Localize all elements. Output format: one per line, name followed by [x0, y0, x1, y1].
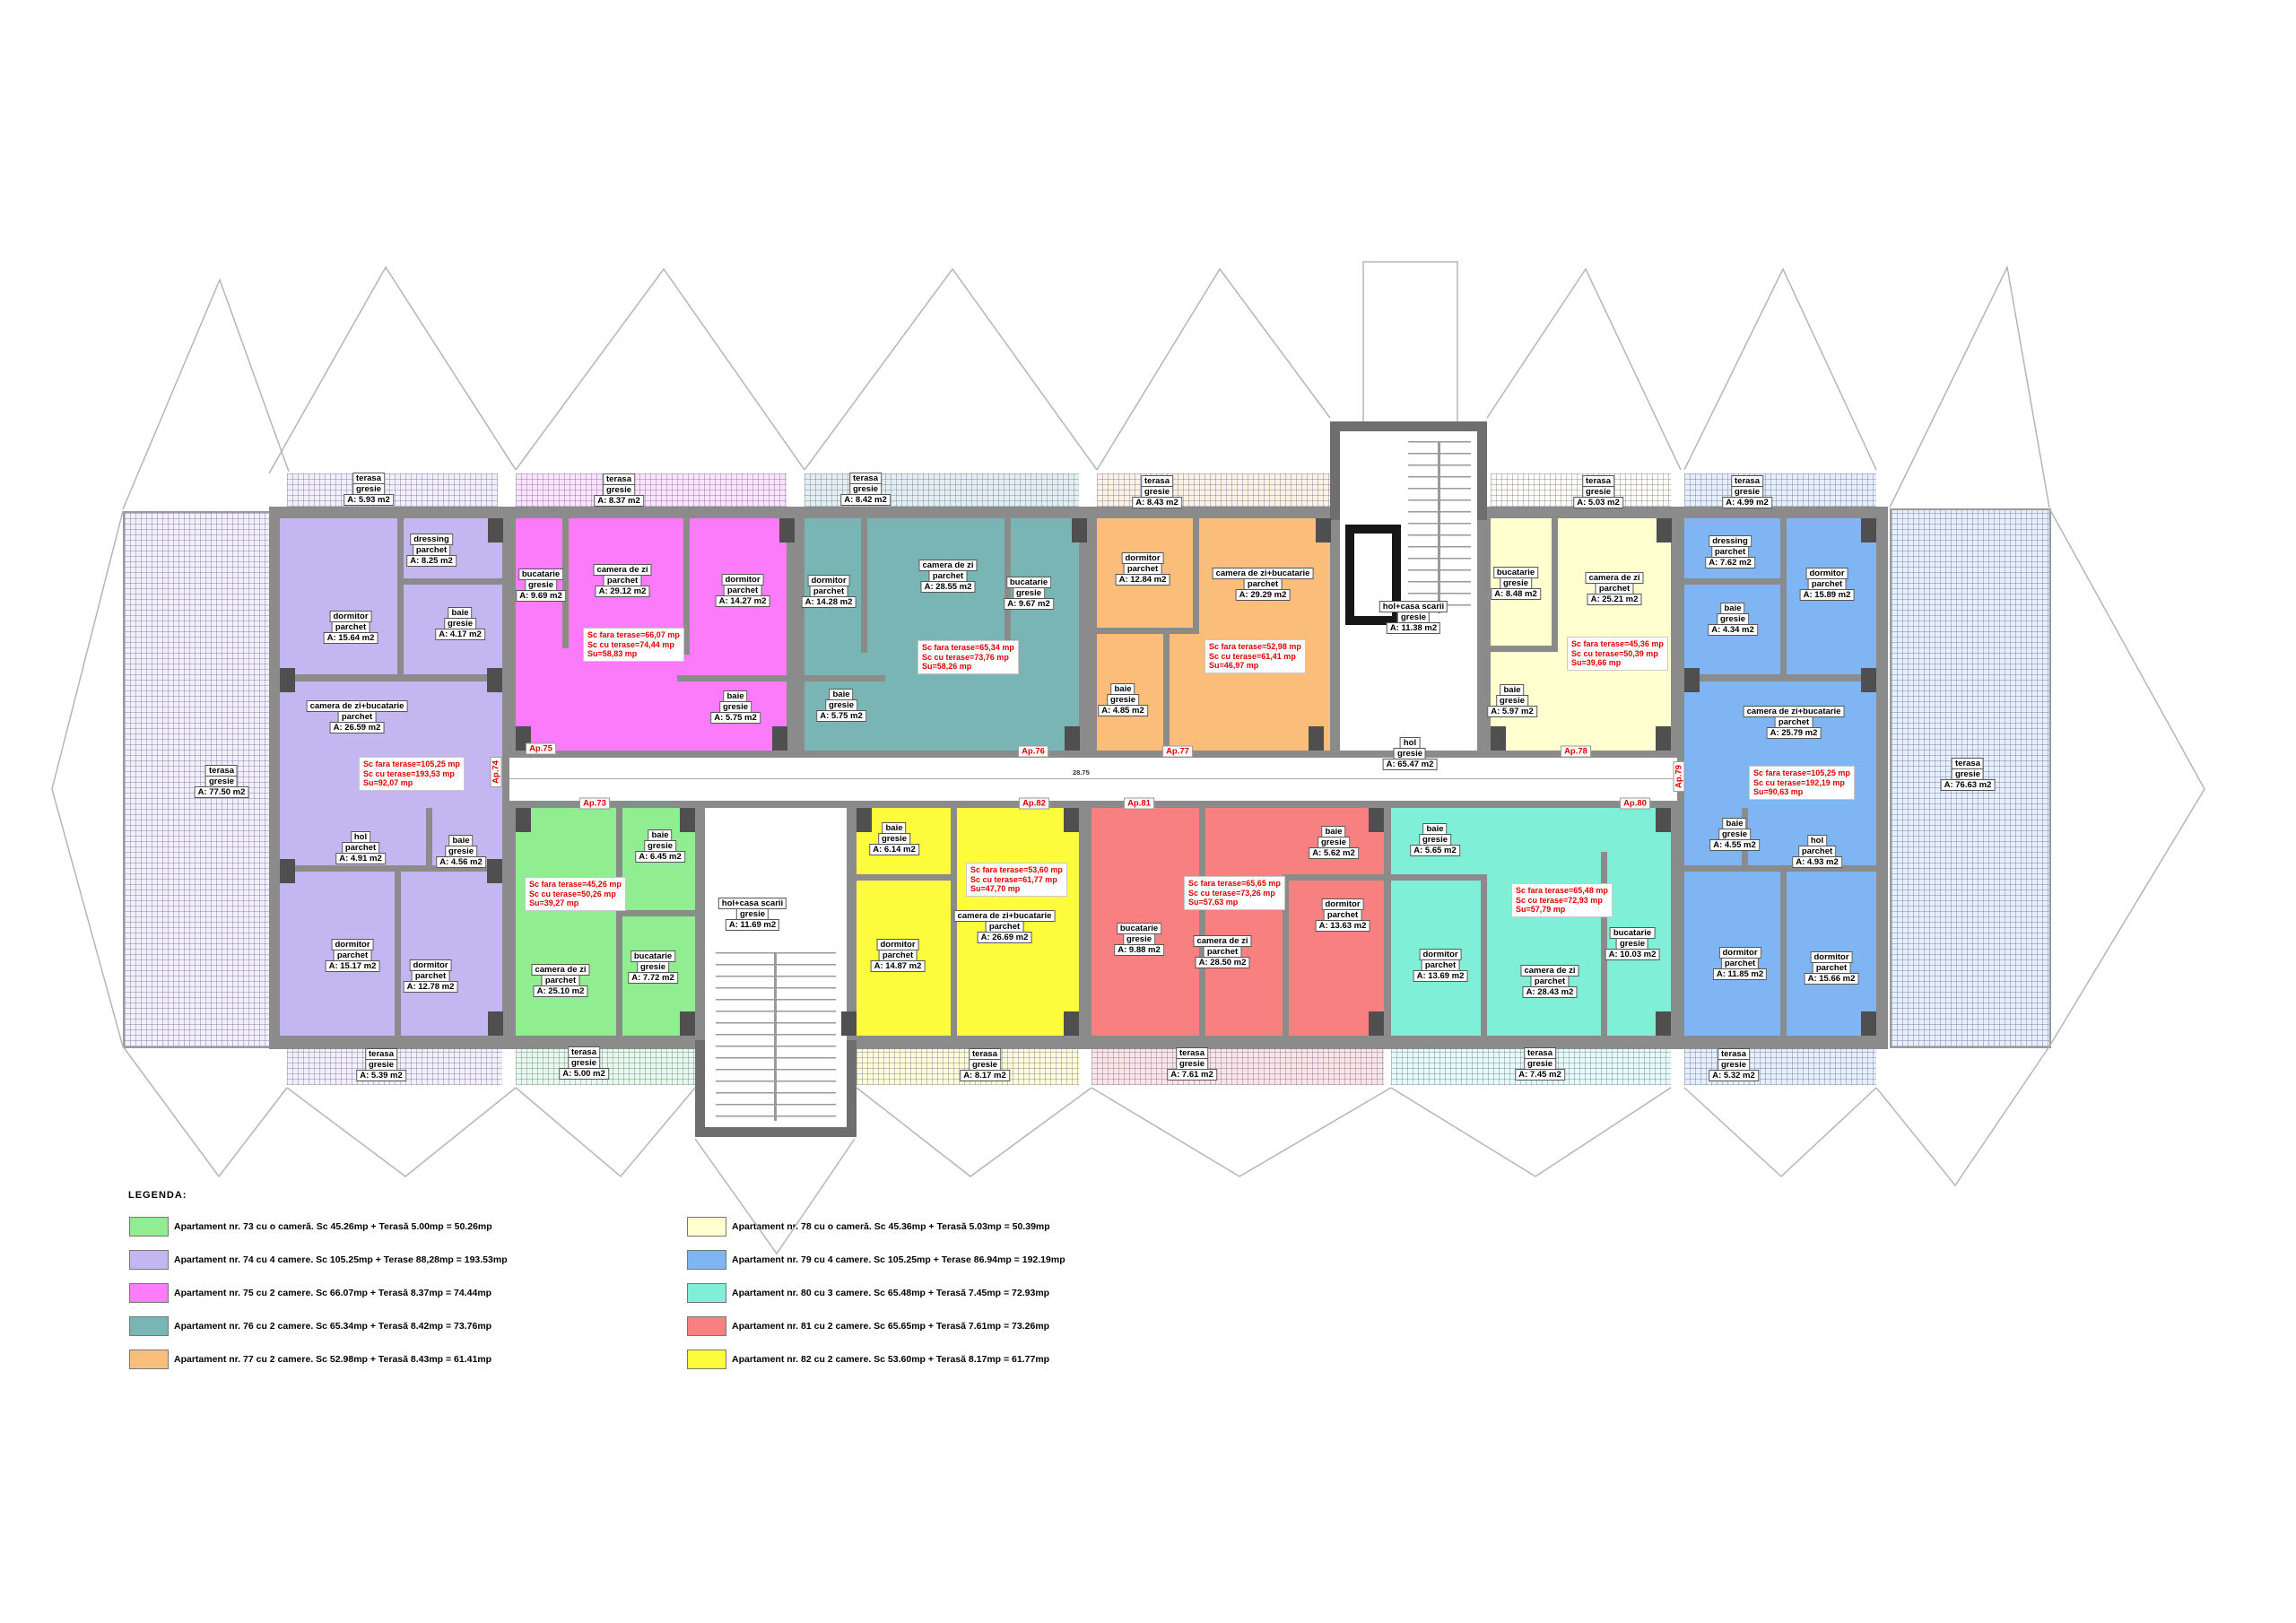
room-label-74-dormitor: dormitorparchetA: 12.78 m2	[404, 960, 458, 993]
apartment-tag-75: Ap.75	[526, 743, 556, 755]
terrace-label-79-terasa: terasagresieA: 76.63 m2	[1941, 759, 1996, 791]
room-label-79-baie: baiegresieA: 4.55 m2	[1709, 819, 1760, 851]
summary-ap82: Sc fara terase=53,60 mpSc cu terase=61,7…	[966, 863, 1067, 897]
apartment-tag-74: Ap.74	[491, 757, 502, 787]
terrace-label-74-terasa: terasagresieA: 5.39 m2	[356, 1049, 406, 1081]
apartment-tag-73: Ap.73	[579, 798, 610, 810]
room-label-79-baie: baiegresieA: 4.34 m2	[1708, 603, 1758, 636]
room-label-79-hol: holparchetA: 4.93 m2	[1792, 836, 1842, 868]
terrace-label-74-terasa: terasagresieA: 77.50 m2	[195, 766, 249, 798]
corridor-dimension-line	[509, 778, 1677, 779]
terrace-label-81-terasa: terasagresieA: 7.61 m2	[1167, 1048, 1217, 1081]
room-label-74-dormitor: dormitorparchetA: 15.17 m2	[326, 940, 380, 972]
room-label-80-camera-de-zi: camera de ziparchetA: 28.43 m2	[1520, 966, 1578, 998]
corridor-dimension: 28.75	[1073, 768, 1090, 777]
room-label-82-camera-de-zi-bucatarie: camera de zi+bucatarieparchetA: 26.69 m2	[954, 911, 1056, 943]
room-label-74-dormitor: dormitorparchetA: 15.64 m2	[324, 612, 378, 644]
summary-ap78: Sc fara terase=45,36 mpSc cu terase=50,3…	[1567, 637, 1668, 671]
apartment-tag-81: Ap.81	[1124, 798, 1154, 810]
terrace-label-79-terasa: terasagresieA: 4.99 m2	[1722, 476, 1772, 508]
floor-plan-sheet: 28.75 dressingparchetA: 8.25 m2dormitorp…	[0, 0, 2296, 1623]
room-label-74-baie: baiegresieA: 4.56 m2	[436, 836, 486, 868]
apartment-tag-77: Ap.77	[1162, 746, 1193, 758]
room-label-74-hol: holparchetA: 4.91 m2	[335, 832, 386, 864]
room-label-81-baie: baiegresieA: 5.62 m2	[1309, 827, 1359, 859]
summary-ap73: Sc fara terase=45,26 mpSc cu terase=50,2…	[525, 877, 626, 911]
terrace-label-77-terasa: terasagresieA: 8.43 m2	[1132, 476, 1182, 508]
terrace-label-73-terasa: terasagresieA: 5.00 m2	[559, 1047, 609, 1080]
summary-ap80: Sc fara terase=65,48 mpSc cu terase=72,9…	[1511, 883, 1613, 917]
room-label-79-dormitor: dormitorparchetA: 15.66 m2	[1805, 952, 1859, 985]
room-label-73-camera-de-zi: camera de ziparchetA: 25.10 m2	[531, 965, 589, 997]
apartment-tag-78: Ap.78	[1561, 746, 1591, 758]
room-label-73-baie: baiegresieA: 6.45 m2	[635, 830, 685, 863]
room-label-77-camera-de-zi-bucatarie: camera de zi+bucatarieparchetA: 29.29 m2	[1213, 568, 1314, 601]
terrace-label-74-terasa: terasagresieA: 5.93 m2	[344, 473, 394, 506]
room-label-common-hol-casa-scarii: hol+casa scariigresieA: 11.69 m2	[718, 898, 787, 931]
terrace-label-78-terasa: terasagresieA: 5.03 m2	[1573, 476, 1623, 508]
room-label-79-dormitor: dormitorparchetA: 15.89 m2	[1800, 568, 1855, 601]
room-label-82-dormitor: dormitorparchetA: 14.87 m2	[871, 940, 926, 972]
room-label-77-dormitor: dormitorparchetA: 12.84 m2	[1116, 553, 1170, 586]
room-label-76-dormitor: dormitorparchetA: 14.28 m2	[802, 576, 857, 608]
room-label-81-camera-de-zi: camera de ziparchetA: 28.50 m2	[1193, 936, 1251, 968]
room-label-81-bucatarie: bucatariegresieA: 9.88 m2	[1114, 924, 1164, 956]
room-label-common-hol: holgresieA: 65.47 m2	[1383, 738, 1438, 770]
apartment-tag-82: Ap.82	[1019, 798, 1049, 810]
summary-ap75: Sc fara terase=66,07 mpSc cu terase=74,4…	[583, 628, 684, 662]
summary-ap77: Sc fara terase=52,98 mpSc cu terase=61,4…	[1205, 639, 1306, 673]
summary-ap81: Sc fara terase=65,65 mpSc cu terase=73,2…	[1184, 876, 1285, 910]
room-label-74-dressing: dressingparchetA: 8.25 m2	[406, 534, 457, 567]
terrace-label-76-terasa: terasagresieA: 8.42 m2	[840, 473, 891, 506]
room-label-78-baie: baiegresieA: 5.97 m2	[1487, 685, 1537, 717]
room-label-82-baie: baiegresieA: 6.14 m2	[869, 823, 919, 855]
room-label-79-dormitor: dormitorparchetA: 11.85 m2	[1713, 948, 1767, 980]
room-label-75-camera-de-zi: camera de ziparchetA: 29.12 m2	[593, 565, 651, 597]
room-label-79-dressing: dressingparchetA: 7.62 m2	[1705, 536, 1755, 568]
room-label-80-dormitor: dormitorparchetA: 13.69 m2	[1413, 950, 1468, 982]
room-label-75-dormitor: dormitorparchetA: 14.27 m2	[716, 575, 770, 607]
room-label-76-baie: baiegresieA: 5.75 m2	[816, 690, 866, 722]
roof-outline	[0, 0, 2296, 1623]
room-label-80-bucatarie: bucatariegresieA: 10.03 m2	[1605, 928, 1660, 960]
summary-ap74: Sc fara terase=105,25 mpSc cu terase=193…	[359, 757, 465, 791]
room-label-74-camera-de-zi-bucatarie: camera de zi+bucatarieparchetA: 26.59 m2	[307, 701, 408, 733]
room-label-75-baie: baiegresieA: 5.75 m2	[710, 691, 761, 724]
room-label-73-bucatarie: bucatariegresieA: 7.72 m2	[628, 951, 678, 984]
terrace-label-80-terasa: terasagresieA: 7.45 m2	[1515, 1048, 1565, 1081]
room-label-77-baie: baiegresieA: 4.85 m2	[1098, 684, 1148, 716]
room-label-75-bucatarie: bucatariegresieA: 9.69 m2	[516, 569, 566, 602]
terrace-label-79-terasa: terasagresieA: 5.32 m2	[1709, 1049, 1759, 1081]
summary-ap76: Sc fara terase=65,34 mpSc cu terase=73,7…	[918, 640, 1019, 674]
room-label-76-camera-de-zi: camera de ziparchetA: 28.55 m2	[918, 560, 977, 593]
terrace-label-75-terasa: terasagresieA: 8.37 m2	[594, 474, 644, 507]
room-label-78-camera-de-zi: camera de ziparchetA: 25.21 m2	[1585, 573, 1643, 605]
apartment-tag-76: Ap.76	[1018, 746, 1048, 758]
room-label-78-bucatarie: bucatariegresieA: 8.48 m2	[1491, 568, 1541, 600]
terrace-label-82-terasa: terasagresieA: 8.17 m2	[960, 1049, 1010, 1081]
apartment-tag-79: Ap.79	[1674, 761, 1685, 792]
room-label-81-dormitor: dormitorparchetA: 13.63 m2	[1316, 899, 1370, 932]
room-label-common-hol-casa-scarii: hol+casa scariigresieA: 11.38 m2	[1379, 602, 1448, 634]
room-label-76-bucatarie: bucatariegresieA: 9.67 m2	[1004, 577, 1054, 610]
room-label-79-camera-de-zi-bucatarie: camera de zi+bucatarieparchetA: 25.79 m2	[1744, 707, 1845, 739]
room-label-80-baie: baiegresieA: 5.65 m2	[1410, 824, 1460, 856]
room-label-74-baie: baiegresieA: 4.17 m2	[435, 608, 485, 640]
apartment-tag-80: Ap.80	[1620, 798, 1650, 810]
summary-ap79: Sc fara terase=105,25 mpSc cu terase=192…	[1749, 766, 1855, 800]
